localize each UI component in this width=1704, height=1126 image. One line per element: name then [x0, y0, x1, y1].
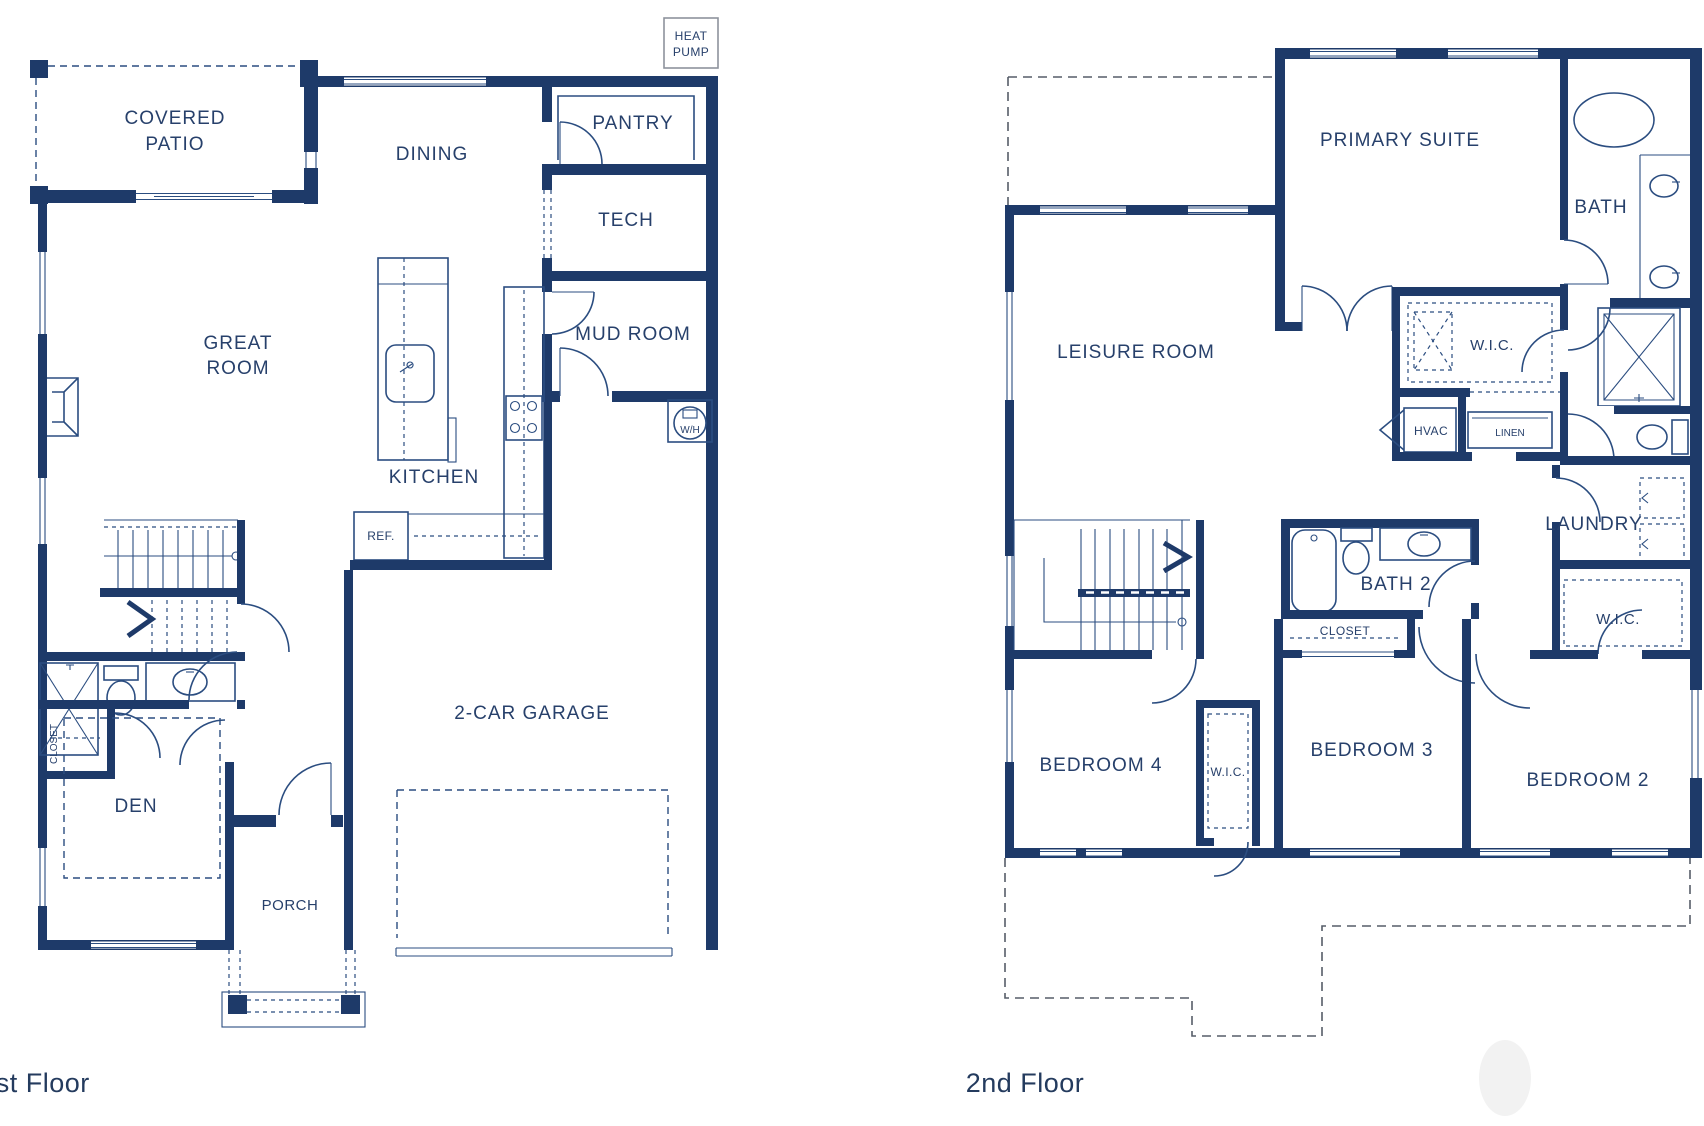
patio-post	[30, 186, 48, 204]
porch-label: PORCH	[262, 897, 319, 914]
door-arc	[1152, 659, 1196, 703]
pantry-label: PANTRY	[592, 113, 673, 134]
door-arc	[560, 348, 608, 396]
wic-bedroom4-label: W.I.C.	[1210, 765, 1245, 779]
door-arc	[1302, 286, 1347, 331]
patio-post	[30, 60, 48, 78]
bath2	[1281, 519, 1479, 619]
sink	[1650, 175, 1678, 197]
covered-patio-label-line1: COVERED	[125, 108, 226, 129]
bathtub	[1574, 93, 1654, 147]
bathtub	[1292, 530, 1336, 612]
floor1-title: 1st Floor	[0, 1068, 90, 1098]
roof-outline-lower	[1005, 858, 1690, 1036]
powder-bath	[38, 652, 245, 755]
door-arc	[1522, 330, 1564, 372]
toilet-tank	[1672, 420, 1688, 454]
primary-suite-label: PRIMARY SUITE	[1320, 130, 1480, 151]
sink	[1408, 532, 1440, 556]
bath2-label: BATH 2	[1360, 574, 1431, 595]
linen-label: LINEN	[1495, 428, 1524, 439]
washer-dryer	[1640, 478, 1684, 564]
laundry-label: LAUNDRY	[1545, 514, 1642, 535]
door-arc	[1564, 240, 1608, 284]
mud-room-label: MUD ROOM	[575, 324, 691, 345]
great-room-label-line1: GREAT	[203, 333, 272, 354]
water-heater-label: W/H	[680, 425, 699, 436]
sliding-door	[136, 194, 272, 200]
roof-outline-upper	[1008, 77, 1272, 205]
primary-suite-walls	[1275, 48, 1400, 331]
bedroom3-label: BEDROOM 3	[1310, 740, 1433, 761]
door-arc	[1476, 654, 1530, 708]
cased-opening	[544, 190, 551, 258]
porch-post	[228, 995, 247, 1014]
toilet-bowl	[1343, 542, 1369, 574]
shower-head	[66, 665, 74, 670]
stairs-floor1	[38, 520, 289, 661]
covered-patio-label-line2: PATIO	[145, 134, 204, 155]
door-arc	[241, 604, 289, 652]
heat-pump-label-line1: HEAT	[675, 29, 708, 43]
floorplan-canvas: HEAT PUMP W/H	[0, 0, 1704, 1126]
great-room-bay	[47, 378, 78, 436]
door-arc	[1347, 286, 1392, 331]
porch-structure	[222, 950, 365, 1027]
wic-primary-label: W.I.C.	[1470, 337, 1514, 354]
toilet-tank	[1341, 528, 1372, 541]
bedroom4-walls	[1005, 650, 1204, 703]
garage-door	[396, 948, 672, 956]
door-arc	[115, 713, 160, 758]
patio-structure	[30, 60, 318, 204]
sink	[1650, 266, 1678, 288]
heat-pump-box	[664, 18, 718, 68]
garage-clearance	[397, 790, 668, 938]
floorplan-drawing: HEAT PUMP W/H	[0, 0, 1704, 1126]
leisure-room-label: LEISURE ROOM	[1057, 342, 1215, 363]
closet-label: CLOSET	[49, 724, 60, 764]
watermark	[1479, 1040, 1531, 1116]
dining-label: DINING	[396, 144, 469, 165]
toilet-tank	[104, 666, 138, 680]
shower-head	[1634, 394, 1644, 402]
cased-opening	[1302, 652, 1394, 657]
water-heater: W/H	[668, 400, 712, 442]
floor1-exterior-walls	[38, 76, 718, 950]
door-arc	[1568, 414, 1614, 460]
stairs-floor2	[1014, 520, 1204, 659]
closet-bedroom3	[1274, 610, 1415, 858]
entry-front-door	[233, 763, 343, 827]
bath-label: BATH	[1574, 197, 1627, 218]
wic-bedroom2-label: W.I.C.	[1596, 611, 1640, 628]
den-label: DEN	[114, 796, 157, 817]
hvac-label: HVAC	[1414, 424, 1448, 438]
dishwasher	[448, 418, 456, 462]
porch-post	[341, 995, 360, 1014]
floor2-title: 2nd Floor	[966, 1068, 1085, 1098]
toilet-bowl	[1637, 425, 1667, 449]
entry-closet: CLOSET	[38, 709, 160, 779]
bedroom4-label: BEDROOM 4	[1039, 755, 1162, 776]
door-arc	[1214, 842, 1248, 876]
closet-bedroom3-label: CLOSET	[1320, 624, 1371, 638]
vanity	[1640, 155, 1690, 300]
tech-label: TECH	[598, 210, 654, 231]
heat-pump: HEAT PUMP	[664, 18, 718, 68]
door-arc	[180, 720, 225, 765]
tub-faucet	[1311, 535, 1317, 541]
stair-direction-arrow	[1164, 543, 1188, 571]
kitchen-island	[378, 258, 448, 460]
refrigerator-label: REF.	[367, 529, 395, 543]
kitchen-fixtures: REF.	[354, 258, 544, 560]
garage-label: 2-CAR GARAGE	[454, 703, 610, 724]
stair-direction-arrow	[128, 602, 152, 636]
primary-bath	[1560, 58, 1702, 465]
island-sink	[386, 345, 434, 402]
floor2-plan: PRIMARY SUITE BATH LEISURE ROOM W.I.C. H…	[966, 48, 1702, 1116]
wic-shelf-unit	[1414, 312, 1452, 370]
den-walls	[64, 718, 234, 950]
door-arc	[1429, 561, 1475, 607]
bedroom2-label: BEDROOM 2	[1526, 770, 1649, 791]
kitchen-label: KITCHEN	[389, 467, 479, 488]
pantry-tech-mudroom-walls	[542, 87, 718, 402]
great-room-label-line2: ROOM	[206, 358, 269, 379]
heat-pump-label-line2: PUMP	[673, 45, 709, 59]
floor2-exterior-walls	[1005, 48, 1702, 858]
hvac-linen-row	[1380, 397, 1568, 461]
door-arc	[279, 763, 331, 815]
floor1-plan: HEAT PUMP W/H	[0, 18, 718, 1098]
